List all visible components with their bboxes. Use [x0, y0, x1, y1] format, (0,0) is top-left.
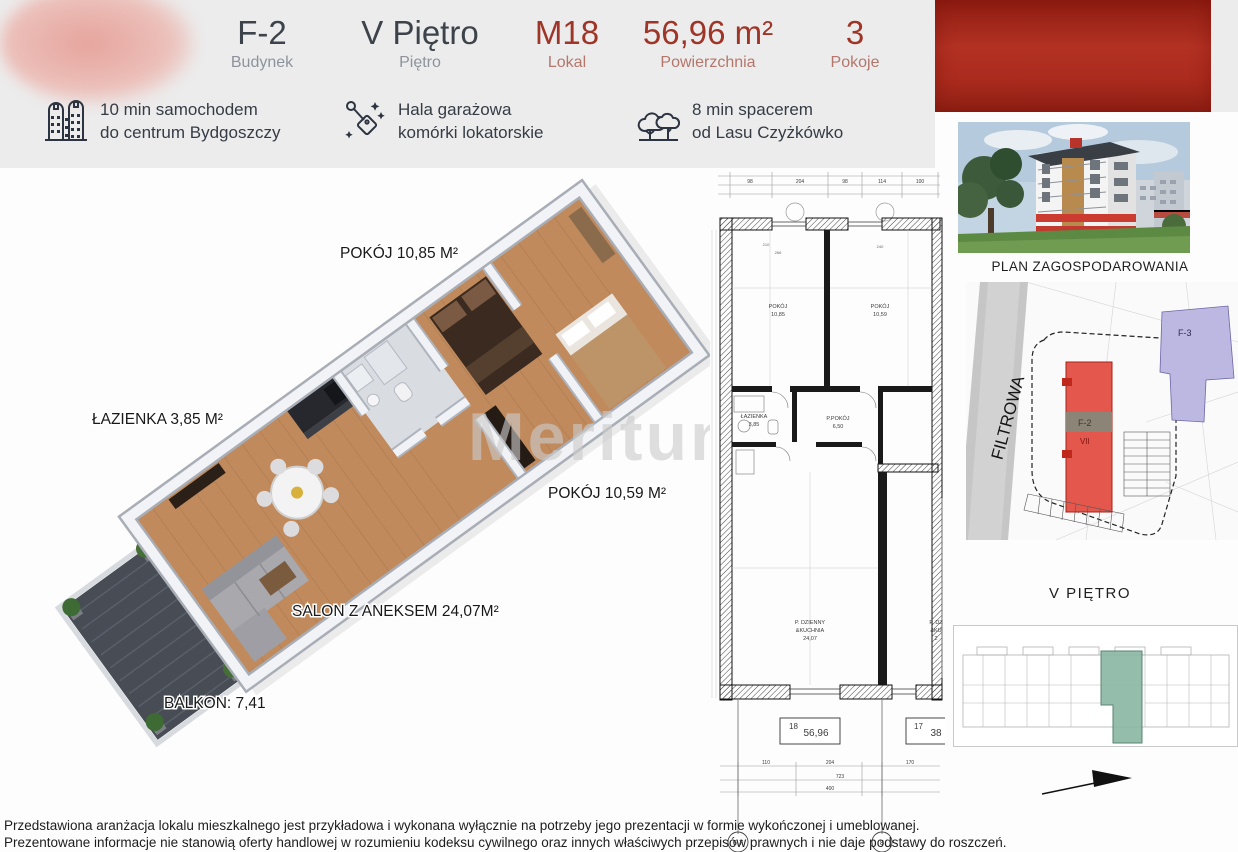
cad-hall-name: P.POKÓJ — [826, 415, 849, 422]
developer-logo-blurred — [0, 0, 195, 104]
disclaimer: Przedstawiona aranżacja lokalu mieszkaln… — [4, 818, 1007, 851]
watermark: Meritum — [468, 399, 710, 475]
dim-bottom: 723 — [836, 774, 845, 780]
stat-rooms: 3 Pokoje — [831, 14, 880, 73]
feature-garage: Hala garażowa komórki lokatorskie — [342, 98, 544, 144]
cad-neighbor-line1: P. DZ — [929, 620, 943, 626]
unit-area: 38 — [930, 728, 942, 739]
cad-room2-area: 10,59 — [873, 312, 887, 318]
stat-unit: M18 Lokal — [535, 14, 599, 73]
main-building — [1028, 138, 1140, 242]
disclaimer-line1: Przedstawiona aranżacja lokalu mieszkaln… — [4, 818, 1007, 835]
unit-no: 17 — [914, 722, 923, 731]
dim-top: 98 — [842, 179, 848, 185]
stat-label: Powierzchnia — [643, 53, 773, 73]
feature-line1: 8 min spacerem — [692, 98, 843, 121]
feature-line2: od Lasu Czyżkówko — [692, 121, 843, 144]
label-salon: SALON Z ANEKSEM 24,07M² — [292, 603, 499, 620]
bath-fixtures-2d — [734, 396, 778, 474]
trees-icon — [636, 98, 680, 144]
cad-neighbor-area: 2 — [934, 636, 937, 642]
floor-strip-plan — [953, 625, 1238, 747]
unit-no: 18 — [789, 722, 798, 731]
stat-label: Budynek — [231, 53, 293, 73]
stat-value: V Piętro — [361, 14, 478, 52]
dim-top: 100 — [916, 179, 925, 185]
label-balcony: BALKON: 7,41 — [164, 695, 266, 712]
garage-tag-icon — [342, 98, 386, 144]
label-room1: POKÓJ 10,85 M² — [340, 245, 458, 262]
label-bath: ŁAZIENKA 3,85 M² — [92, 411, 223, 428]
interior-walls-2d — [732, 230, 932, 685]
cad-salon-line2: &KUCHNIA — [796, 628, 825, 634]
feature-forest-distance: 8 min spacerem od Lasu Czyżkówko — [636, 98, 843, 144]
dim-bottom: 110 — [762, 760, 770, 766]
dimension-lines-top — [718, 172, 940, 198]
dim-top: 204 — [796, 179, 805, 185]
north-arrow-icon — [1040, 765, 1140, 800]
dim-mid: 266 — [775, 250, 782, 255]
stat-value: 3 — [831, 14, 880, 52]
cad-neighbor-line2: &KU — [930, 628, 941, 634]
stat-label: Piętro — [361, 53, 478, 73]
site-plan-title: PLAN ZAGOSPODAROWANIA — [958, 259, 1222, 274]
apartment-card-page: F-2 Budynek V Piętro Piętro M18 Lokal 56… — [0, 0, 1238, 852]
stat-area: 56,96 m² Powierzchnia — [643, 14, 773, 73]
feature-line2: do centrum Bydgoszczy — [100, 121, 280, 144]
cad-room1-name: POKÓJ — [769, 303, 788, 310]
f2-floors: VII — [1080, 437, 1090, 446]
stat-label: Lokal — [535, 53, 599, 73]
unit-badge-17: 17 38 — [906, 718, 945, 744]
cad-room1-area: 10,85 — [771, 312, 785, 318]
cad-bath-area: 3,85 — [749, 422, 760, 428]
label-room2: POKÓJ 10,59 M² — [548, 485, 666, 502]
stat-value: F-2 — [231, 14, 293, 52]
buildings-icon — [44, 98, 88, 144]
building-photo — [958, 122, 1190, 253]
dim-top: 114 — [878, 179, 886, 185]
dim-bottom: 170 — [906, 760, 915, 766]
unit-badge-18: 18 56,96 — [780, 718, 840, 744]
cad-bath-name: ŁAZIENKA — [741, 414, 768, 420]
dim-mid: 210 — [763, 242, 770, 247]
f2-label: F-2 — [1078, 418, 1092, 428]
stat-value: M18 — [535, 14, 599, 52]
floor-plan-title: V PIĘTRO — [958, 585, 1222, 602]
cad-hall-area: 6,50 — [833, 424, 844, 430]
feature-line1: 10 min samochodem — [100, 98, 280, 121]
disclaimer-line2: Prezentowane informacje nie stanowią ofe… — [4, 835, 1007, 852]
feature-line1: Hala garażowa — [398, 98, 544, 121]
stat-value: 56,96 m² — [643, 14, 773, 52]
dim-mid: 240 — [877, 244, 884, 249]
dim-bottom: 204 — [826, 760, 835, 766]
unit-area: 56,96 — [803, 728, 828, 739]
door-arcs — [772, 392, 876, 461]
feature-line2: komórki lokatorskie — [398, 121, 544, 144]
site-plan: FILTROWA F-3 F-2 VII — [966, 282, 1238, 540]
apartment-3d-render: Meritum POKÓJ 10,85 M² ŁAZIENKA 3,85 M² … — [20, 172, 710, 782]
f3-label: F-3 — [1178, 328, 1192, 338]
windows — [772, 222, 916, 694]
stat-floor: V Piętro Piętro — [361, 14, 478, 73]
stat-label: Pokoje — [831, 53, 880, 73]
stat-building: F-2 Budynek — [231, 14, 293, 73]
dim-top: 98 — [747, 179, 753, 185]
feature-city-distance: 10 min samochodem do centrum Bydgoszczy — [44, 98, 280, 144]
cad-salon-area: 24,07 — [803, 636, 817, 642]
building-f2: F-2 VII — [1062, 362, 1112, 512]
dim-bottom: 400 — [826, 786, 835, 792]
cad-salon-line1: P. DZIENNY — [795, 620, 825, 626]
redacted-contact-banner — [935, 0, 1211, 112]
exterior-walls — [720, 218, 942, 700]
technical-floor-plan: 98 204 98 114 100 — [710, 168, 945, 852]
cad-room2-name: POKÓJ — [871, 303, 890, 310]
